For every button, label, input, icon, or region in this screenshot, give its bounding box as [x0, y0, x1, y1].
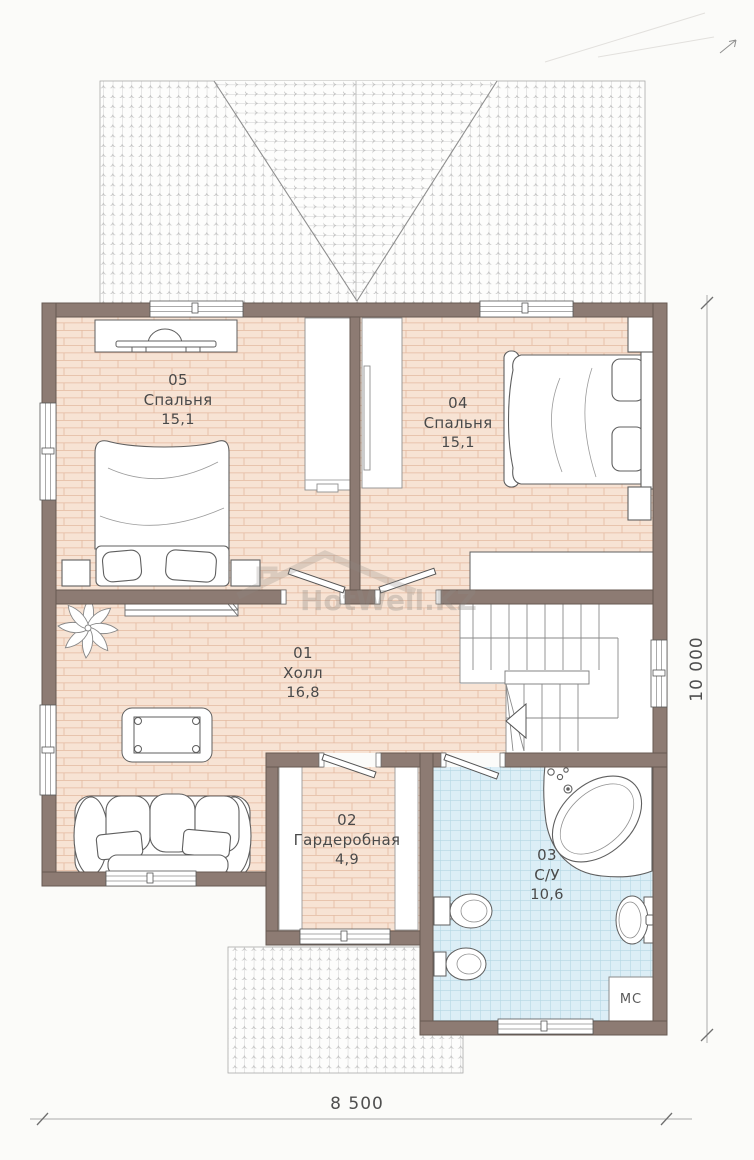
- sketch-lines: [545, 13, 736, 62]
- room-label-bedroom-05: 05 Спальня 15,1: [103, 370, 253, 430]
- window-left-bedroom: [40, 403, 56, 500]
- window-left-hall: [40, 705, 56, 795]
- room-name: С/У: [472, 865, 622, 885]
- room-area: 15,1: [103, 410, 253, 430]
- room-number: 01: [228, 643, 378, 663]
- room-name: Спальня: [103, 390, 253, 410]
- coffee-table-icon: [122, 708, 212, 762]
- room-label-hall: 01 Холл 16,8: [228, 643, 378, 703]
- window-right-stairs: [651, 640, 667, 707]
- room-number: 04: [383, 393, 533, 413]
- room-label-bathroom: 03 С/У 10,6: [472, 845, 622, 905]
- room-area: 10,6: [472, 885, 622, 905]
- room-name: Спальня: [383, 413, 533, 433]
- dresser-icon: [470, 552, 653, 590]
- nightstand-icon: [628, 314, 653, 352]
- room-name: Гардеробная: [272, 830, 422, 850]
- room-area: 4,9: [272, 850, 422, 870]
- washing-machine-label: МС: [609, 977, 653, 1022]
- window-top-left: [150, 301, 243, 317]
- room-number: 02: [272, 810, 422, 830]
- room-label-bedroom-04: 04 Спальня 15,1: [383, 393, 533, 453]
- room-label-wardrobe: 02 Гардеробная 4,9: [272, 810, 422, 870]
- tv-console-icon: [95, 320, 237, 352]
- bidet-icon: [434, 948, 486, 980]
- dimension-width-label: 8 500: [284, 1094, 430, 1114]
- room-number: 05: [103, 370, 253, 390]
- roof-top: [100, 81, 645, 303]
- window-bottom-hall: [106, 871, 196, 886]
- nightstand-icon: [231, 560, 260, 586]
- room-number: 03: [472, 845, 622, 865]
- window-top-right: [480, 301, 573, 317]
- wardrobe-icon-05: [305, 318, 350, 492]
- room-area: 15,1: [383, 433, 533, 453]
- room-area: 16,8: [228, 683, 378, 703]
- room-name: Холл: [228, 663, 378, 683]
- nightstand-icon: [62, 560, 90, 586]
- window-bottom-bathroom: [498, 1019, 593, 1034]
- console-shelf-icon: [125, 604, 238, 616]
- dimension-line-bottom: [30, 1113, 692, 1125]
- nightstand-icon: [628, 487, 651, 520]
- sofa-icon: [74, 794, 251, 877]
- dimension-height-label: 10 000: [687, 629, 707, 709]
- floor-plan: HotWell.KZ 05 Спальня 15,1 04 Спальня 15…: [0, 0, 754, 1160]
- window-bottom-wardrobe: [300, 929, 390, 944]
